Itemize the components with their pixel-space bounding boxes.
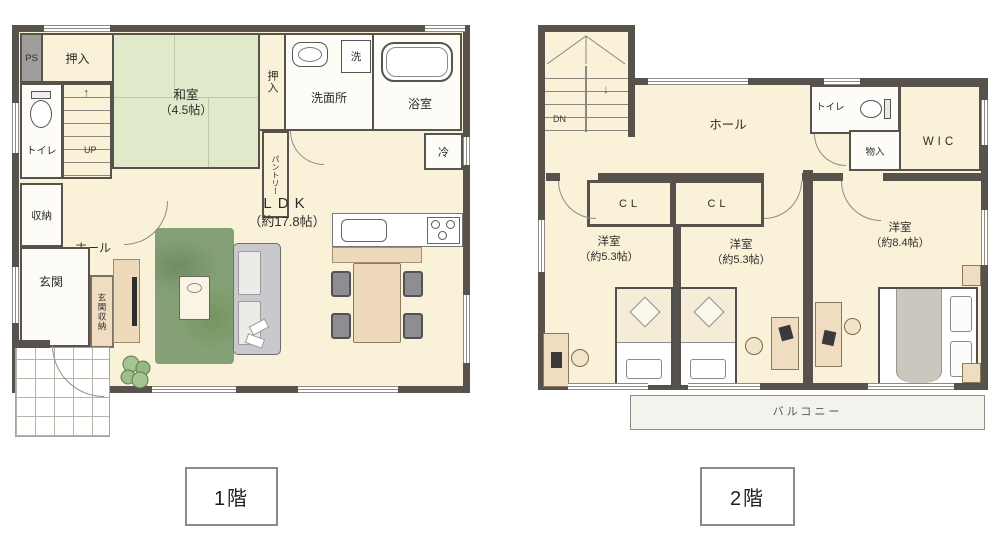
oshiire-top-label: 押入 [65, 50, 89, 67]
floor2-tag: 2階 [700, 467, 795, 526]
bedroom1-name: 洋室 [550, 235, 668, 250]
window [12, 267, 19, 323]
room-bath: 浴室 [372, 33, 462, 131]
window [648, 78, 748, 85]
window [44, 25, 110, 32]
single-bed-2 [679, 287, 737, 387]
genkan-bottom-wall [15, 340, 50, 348]
desk [815, 302, 842, 367]
genkan-storage-label: 玄関収納 [96, 293, 108, 331]
bedroom2-label: 洋室 （約5.3帖） [684, 238, 798, 267]
bedroom3-size: （約8.4帖） [836, 236, 964, 250]
wic-label: WIC [901, 135, 979, 150]
room-senmenjo: 洗 洗面所 [284, 33, 374, 131]
monoire-label: 物入 [865, 144, 884, 158]
floor2-plan: ↓ DN ホール トイレ WIC 物入 CL CL 洋室 （約5.3帖） 洋室 [538, 25, 990, 432]
sofa [233, 243, 281, 355]
desk-chair [745, 337, 763, 355]
washitsu-size: （4.5帖） [114, 103, 258, 119]
cl2-label: CL [707, 198, 729, 210]
bedroom1-size: （約5.3帖） [550, 250, 668, 264]
bedroom3-name: 洋室 [836, 221, 964, 236]
wall-bedroom2-3 [803, 170, 813, 383]
nightstand [962, 363, 981, 383]
cl1-label: CL [619, 198, 641, 210]
window [824, 78, 860, 85]
toilet-icon [31, 91, 51, 99]
bedroom-wall [546, 173, 560, 181]
fridge-box: 冷 [424, 133, 463, 170]
pantry-label: パントリー [270, 155, 281, 195]
sink-icon [292, 42, 328, 67]
washer-box: 洗 [341, 40, 371, 73]
stairs-1f: ↑ UP [62, 83, 112, 179]
ps-label: PS [25, 53, 38, 64]
toilet-1f-label: トイレ [22, 145, 61, 158]
closet-cl2: CL [673, 180, 764, 227]
room-toilet-2f: トイレ [810, 85, 900, 134]
dining-chair [403, 313, 423, 339]
window [688, 383, 760, 390]
bedroom1-label: 洋室 （約5.3帖） [550, 235, 668, 264]
window [463, 137, 470, 165]
senmenjo-label: 洗面所 [286, 91, 372, 107]
dining-chair [331, 313, 351, 339]
stove-icon [427, 217, 460, 244]
tv-icon [132, 277, 137, 326]
desk-chair [844, 318, 861, 335]
balcony: バルコニー [630, 395, 985, 430]
room-oshiire-side: 押入 [258, 33, 286, 131]
room-genkan: 玄関 [20, 247, 90, 347]
window [425, 25, 465, 32]
bedroom2-size: （約5.3帖） [684, 253, 798, 267]
floorplan-canvas: PS 押入 和室 （4.5帖） 押入 洗 洗面所 浴室 [0, 0, 1000, 553]
hall-2f-label: ホール [688, 117, 768, 133]
room-oshiire-top: 押入 [41, 33, 114, 83]
window [981, 100, 988, 145]
up-label: UP [84, 145, 97, 157]
stairwell-2f: ↓ DN [538, 25, 635, 137]
bathtub-icon [381, 42, 453, 82]
coffee-table [179, 276, 210, 320]
toilet-2f-tank-icon [884, 99, 891, 119]
plant-icon [118, 352, 154, 390]
toilet-2f-bowl-icon [860, 100, 882, 118]
shuno-1f-label: 収納 [31, 208, 52, 223]
stairs-down-arrow-icon: ↓ [603, 82, 609, 96]
washer-label: 洗 [351, 49, 362, 64]
fridge-label: 冷 [438, 144, 449, 160]
bed-blanket [896, 289, 942, 383]
bath-label: 浴室 [380, 97, 460, 113]
window [538, 220, 545, 272]
bedroom-wall [883, 173, 981, 181]
bed-pillow [690, 359, 726, 379]
floor1-tag-label: 1階 [214, 482, 249, 511]
window [463, 295, 470, 363]
ldk-name: LDK [205, 194, 369, 214]
room-ps: PS [20, 33, 43, 83]
bedroom2-name: 洋室 [684, 238, 798, 253]
room-shuno-1f: 収納 [20, 183, 63, 247]
window [868, 383, 954, 390]
room-toilet-1f: トイレ [20, 83, 63, 179]
toilet-2f-label: トイレ [816, 102, 845, 114]
toilet-bowl-icon [30, 100, 52, 128]
floor1-tag: 1階 [185, 467, 278, 526]
single-bed-1 [615, 287, 673, 387]
washitsu-label: 和室 （4.5帖） [114, 87, 258, 119]
balcony-label: バルコニー [773, 405, 843, 419]
closet-cl1: CL [587, 180, 673, 227]
room-washitsu: 和室 （4.5帖） [112, 33, 260, 169]
room-monoire: 物入 [849, 130, 901, 171]
bed-pillow [626, 359, 662, 379]
bed-pillow [950, 296, 972, 332]
window [298, 386, 398, 393]
oshiire-side-label: 押入 [264, 70, 280, 94]
kitchen-island [332, 247, 422, 263]
desk [543, 333, 569, 387]
desk-chair [571, 349, 589, 367]
floor2-tag-label: 2階 [730, 482, 765, 511]
window [981, 210, 988, 265]
dining-chair [331, 271, 351, 297]
genkan-label: 玄関 [22, 275, 80, 291]
stair-landing-lines [545, 32, 628, 66]
kitchen-sink-icon [341, 219, 387, 242]
window [12, 103, 19, 153]
window [568, 383, 648, 390]
dn-label: DN [553, 114, 566, 126]
kitchen-counter [332, 213, 463, 247]
dining-table [353, 263, 401, 343]
stairs-up-arrow-icon: ↑ [83, 85, 90, 100]
floor1-plan: PS 押入 和室 （4.5帖） 押入 洗 洗面所 浴室 [12, 25, 470, 440]
bedroom3-label: 洋室 （約8.4帖） [836, 221, 964, 250]
room-wic: WIC [899, 85, 981, 171]
washitsu-name: 和室 [114, 87, 258, 103]
desk [771, 317, 799, 370]
window [152, 386, 236, 393]
tv-board [113, 259, 140, 343]
nightstand [962, 265, 981, 286]
dining-chair [403, 271, 423, 297]
genkan-storage-box: 玄関収納 [90, 275, 114, 348]
